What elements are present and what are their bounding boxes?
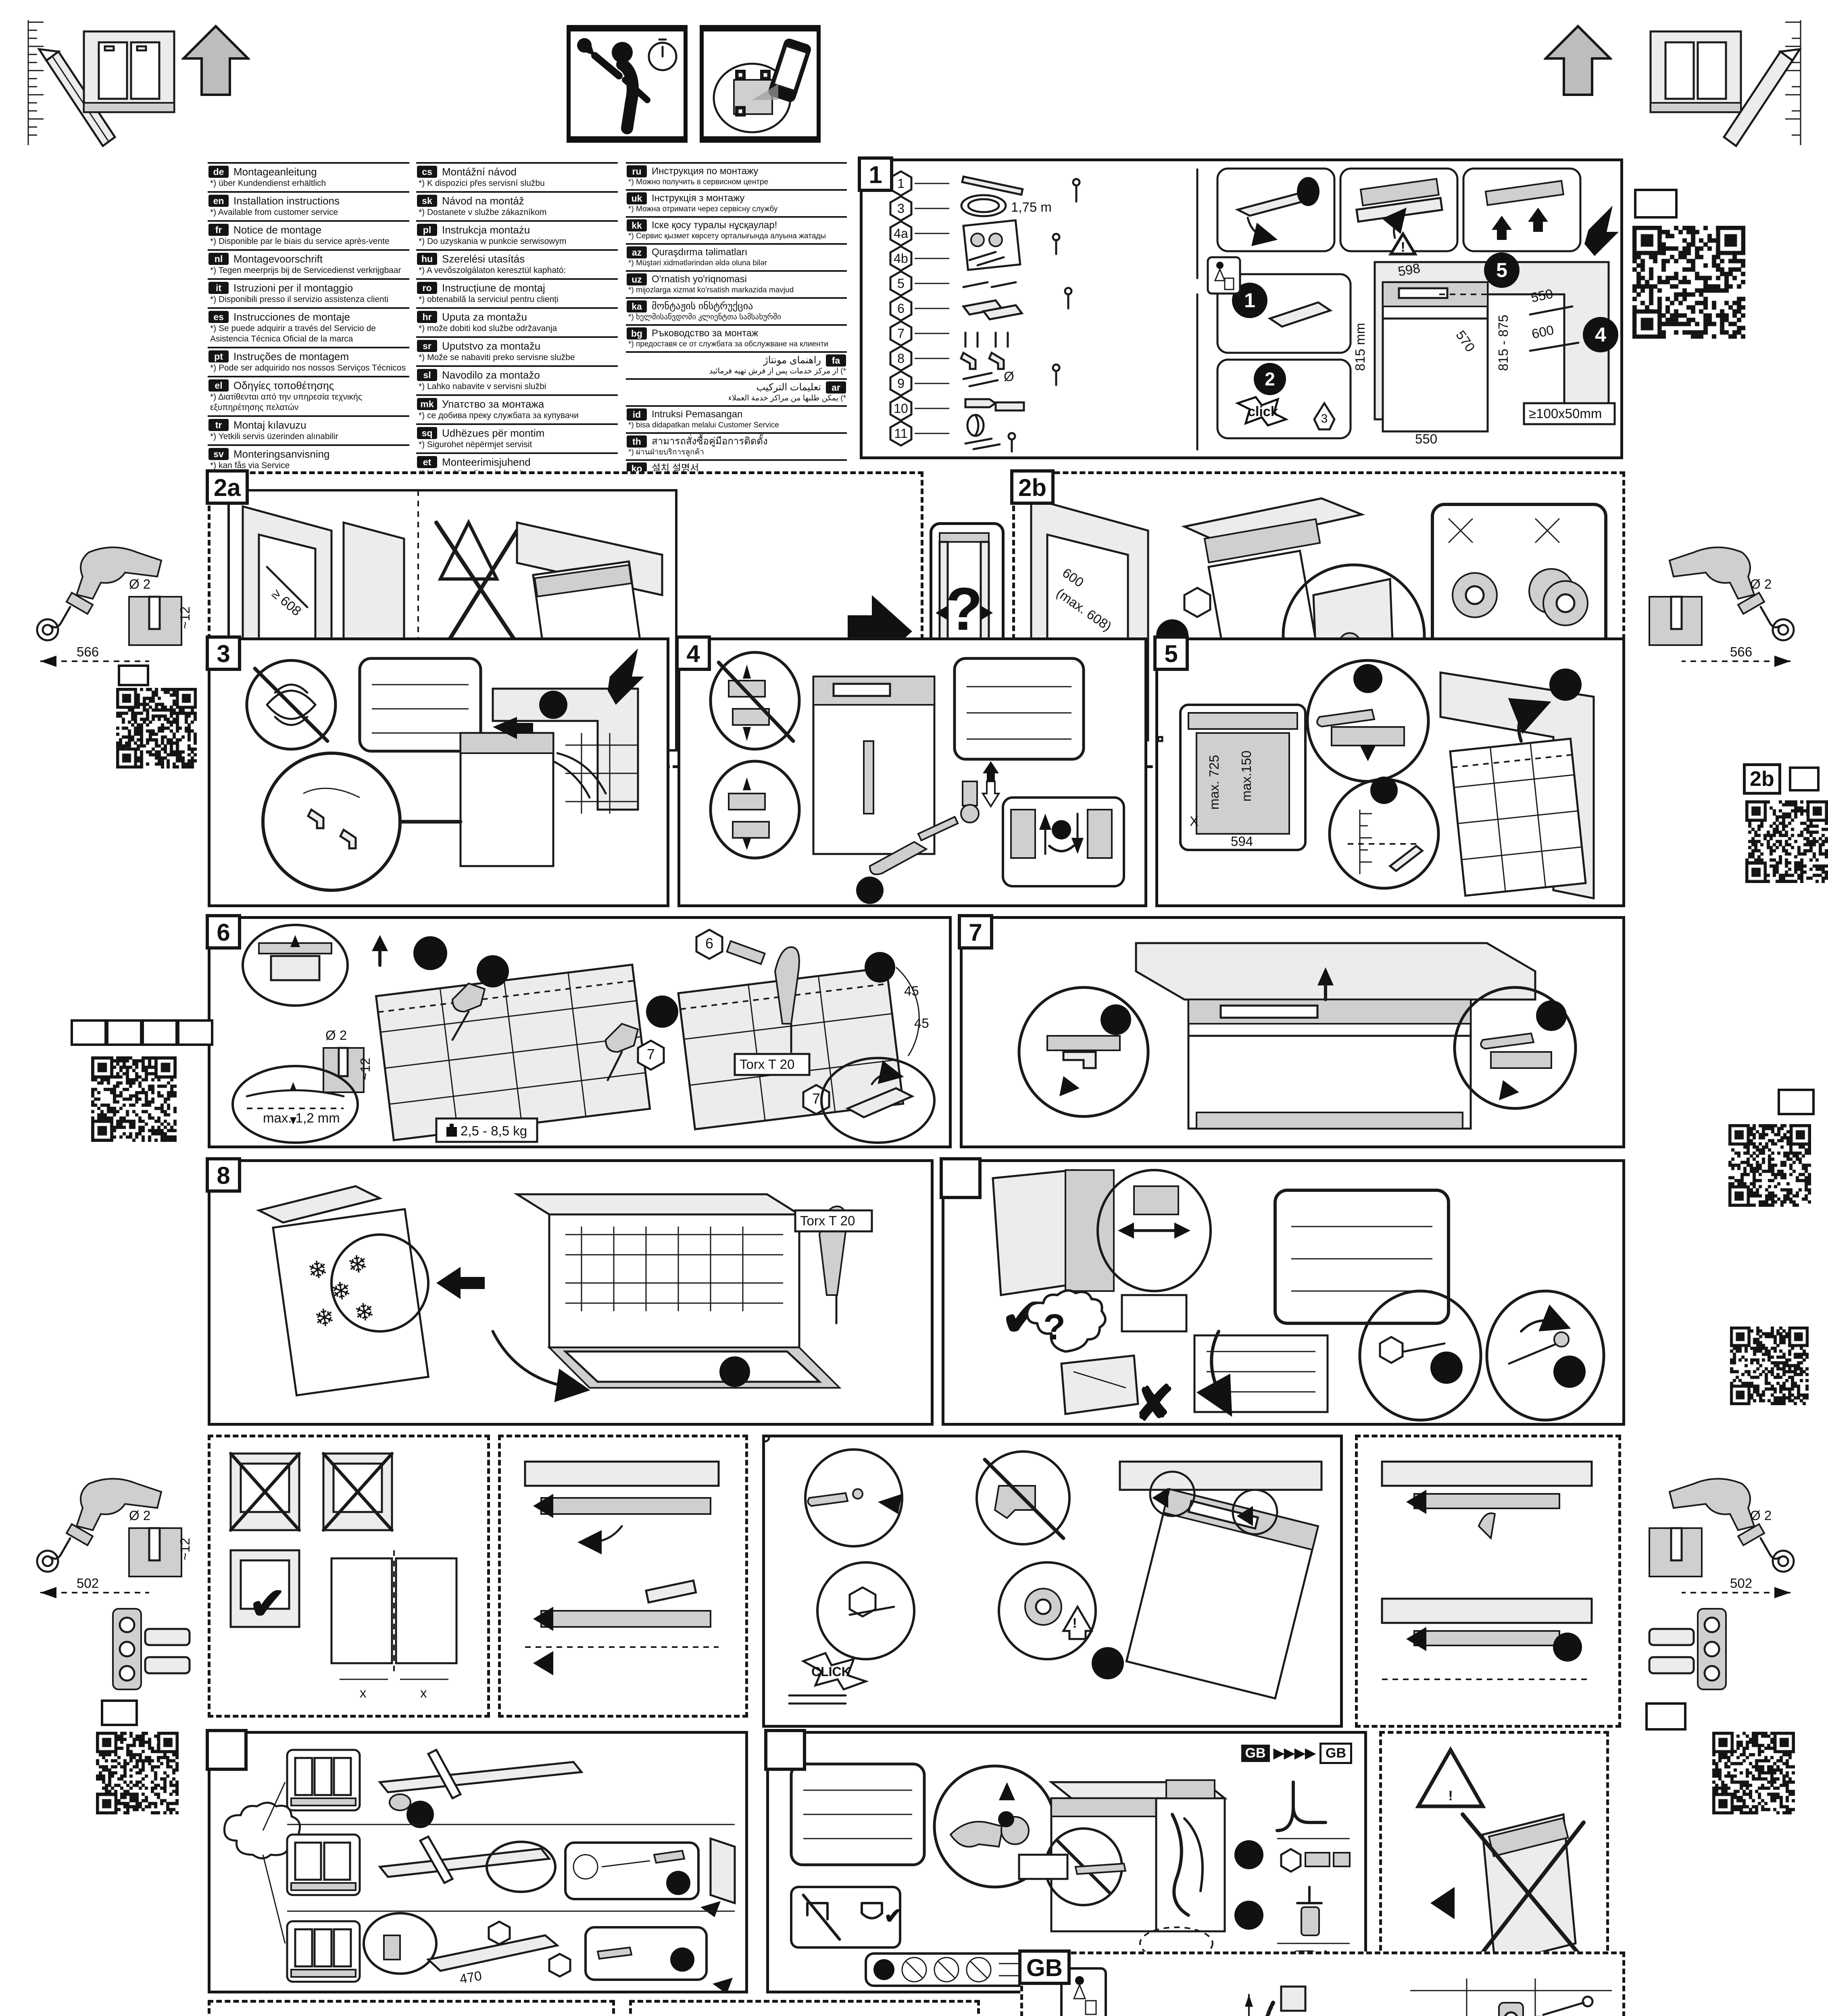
language-note: *) Do uzyskania w punkcie serwisowym [417,236,617,247]
language-code: sv [208,448,229,460]
language-code: hu [417,253,437,265]
panel-label-checkbox[interactable] [764,1729,806,1771]
language-code: de [208,166,229,178]
language-code: pl [417,224,437,236]
svg-text:815 mm: 815 mm [1353,323,1367,371]
language-title: Notice de montage [233,223,321,236]
panel-side-fixing: ! CLICK [762,1435,1343,1728]
part-number: 5 [897,276,905,291]
side-fixing-diagram: ! CLICK [765,1437,1340,1725]
svg-text:❄: ❄ [306,1255,329,1285]
part-number: 11 [894,426,907,441]
gb-chip: GB [1241,1745,1270,1762]
language-title: Udhëzues për montim [442,427,544,439]
qr-code [1632,226,1745,339]
svg-text:502: 502 [1730,1576,1752,1591]
language-code: sr [417,340,437,352]
language-note: *) از مرکز خدمات پس از فرش تهیه فرمائید [627,367,846,376]
language-code: sk [417,195,437,207]
svg-text:4: 4 [1595,323,1606,346]
language-code: et [417,456,437,468]
panel-label: 3 [206,635,241,671]
panel-label: 6 [206,914,241,950]
language-title: Instruções de montagem [233,350,349,363]
language-entry-mk: mkУпатство за монтажа*) се добива преку … [416,396,618,425]
svg-text:~12: ~12 [177,1538,192,1560]
language-title: Installation instructions [233,194,340,207]
language-code: sq [417,427,437,439]
panel-countertop-fixing [1355,1435,1621,1728]
svg-text:?: ? [1043,1307,1065,1347]
language-note: *) über Kundendienst erhältlich [208,178,409,189]
language-title: Инструкция по монтажу [652,166,758,177]
language-title: Instrucciones de montaje [233,310,350,323]
part-number: 6 [897,301,905,316]
svg-text:!: ! [1448,1788,1453,1804]
part-number: 3 [897,201,905,216]
language-title: Szerelési utasítás [442,252,525,265]
language-note: *) Можно получить в сервисном центре [627,177,846,187]
panel-door-alignment: ✔ ? ✘ [942,1159,1625,1426]
language-code: en [208,195,229,207]
language-code: fa [826,354,846,367]
qr-code [116,688,197,768]
svg-text:1: 1 [1244,289,1255,312]
up-arrow-icon [181,24,250,97]
language-note: *) Disponible par le biais du service ap… [208,236,409,247]
language-note: *) K dispozici přes servisní službu [417,178,617,189]
panel-gb-drain: GB [1020,1951,1625,2016]
part-number: 8 [897,351,905,366]
panel-label: 5 [1153,635,1189,671]
part-number: 9 [897,376,905,391]
svg-text:Ø 2: Ø 2 [1750,1508,1772,1523]
language-entry-es: esInstrucciones de montaje*) Se puede ad… [208,309,409,348]
language-title: Інструкція з монтажу [652,193,744,204]
svg-text:Ø 2: Ø 2 [129,1508,150,1523]
language-entry-fr: frNotice de montage*) Disponible par le … [208,222,409,251]
language-code: hr [417,311,437,323]
language-code: kk [627,219,647,231]
step-checkbox[interactable] [106,1019,142,1046]
svg-text:600: 600 [1530,322,1555,342]
part-number: 1 [897,176,905,191]
language-code: sl [417,369,437,381]
language-code: th [627,435,647,448]
language-note: *) предоставя се от службата за обслужва… [627,339,846,349]
language-entry-uz: uzO'rnatish yo'riqnomasi*) mijozlarga xi… [626,272,847,299]
language-title: O'rnatish yo'riqnomasi [652,274,747,285]
svg-text:Ø: Ø [1004,369,1014,384]
svg-text:X: X [1190,814,1199,829]
language-entry-de: deMontageanleitung*) über Kundendienst e… [208,164,409,193]
language-title: راهنمای مونتاژ [763,355,821,366]
svg-text:x: x [420,1685,427,1700]
svg-text:❄: ❄ [346,1250,369,1279]
panel-label: 1 [858,156,893,192]
language-note: *) Lahko nabavite v servisni službi [417,381,617,392]
panel-3-diagram [211,640,667,904]
language-note: *) Se puede adquirir a través del Servic… [208,323,409,344]
step-checkbox[interactable] [1789,766,1820,791]
svg-text:x: x [360,1685,367,1700]
panel-4-diagram [680,640,1144,904]
step-checkbox[interactable] [1634,189,1678,219]
svg-text:45: 45 [904,983,919,998]
countertop-fixing-diagram [1358,1437,1618,1725]
svg-text:2,5 - 8,5 kg: 2,5 - 8,5 kg [461,1123,527,1138]
language-entry-it: itIstruzioni per il montaggio*) Disponib… [208,280,409,309]
svg-text:!: ! [1072,1616,1077,1631]
panel-label: GB [1018,1949,1071,1985]
language-title: Упатство за монтажа [442,398,544,410]
manual-sheet: deMontageanleitung*) über Kundendienst e… [0,0,1828,2016]
language-entry-sk: skNávod na montáž*) Dostanete v službe z… [416,193,618,222]
language-note: *) يمكن طلبها من مراكز خدمة العملاء [627,394,846,403]
panel-step-5: 5 max. 725 max.150 594 X [1155,637,1625,907]
language-note: *) Disponibili presso il servizio assist… [208,294,409,305]
language-title: Montageanleitung [233,165,317,178]
language-note: *) može dobiti kod službe održavanja [417,323,617,334]
svg-text:!: ! [1401,240,1405,255]
language-note: *) Tegen meerprijs bij de Servicedienst … [208,265,409,276]
step-checkbox[interactable] [101,1699,138,1726]
svg-text:✘: ✘ [1134,1377,1175,1423]
svg-text:Ø 2: Ø 2 [1750,577,1772,591]
language-entry-az: azQuraşdırma təlimatları*) Müştəri xidmə… [626,245,847,272]
panel-label-checkbox[interactable] [206,1729,248,1771]
part-number: 10 [894,401,908,416]
panel-1-diagram: 134a4b567891011 1,75 m Ø [863,161,1620,456]
language-code: mk [417,398,437,410]
qr-code [1745,800,1828,883]
panel-top-rail-prep [498,1435,748,1718]
svg-text:✔: ✔ [249,1579,286,1629]
svg-text:Torx T 20: Torx T 20 [740,1057,794,1072]
panel-label: 2a [206,469,249,505]
language-entry-ka: kaმონტაჟის ინსტრუქცია*) ხელმისაწვდომი კლ… [626,299,847,326]
language-note: *) Можна отримати через сервісну службу [627,204,846,214]
language-note: *) Može se nabaviti preko servisne služb… [417,352,617,363]
language-note: *) Pode ser adquirido nos nossos Serviço… [208,363,409,373]
panel-label: 2b [1010,469,1055,505]
language-code: az [627,246,647,258]
panel-label: 7 [958,914,993,950]
language-title: Navodilo za montažo [442,369,540,381]
language-entry-en: enInstallation instructions*) Available … [208,193,409,222]
language-entry-id: idIntruksi Pemasangan*) bisa didapatkan … [626,407,847,434]
language-entry-el: elΟδηγίες τοποθέτησης*) Διατίθενται από … [208,377,409,417]
language-title: Instrucțiune de montaj [442,281,545,294]
panel-plinth: 470 [208,1731,748,1993]
language-code: ka [627,300,647,312]
phone-scan-icon [704,31,817,136]
language-title: Istruzioni per il montaggio [233,281,353,294]
svg-text:815 - 875: 815 - 875 [1496,315,1511,371]
language-entry-pt: ptInstruções de montagem*) Pode ser adqu… [208,348,409,377]
language-title: Uputstvo za montažu [442,339,540,352]
language-note: *) Διατίθενται από την υπηρεσία τεχνικής… [208,392,409,413]
language-entry-hu: huSzerelési utasítás*) A vevőszolgálaton… [416,251,618,280]
svg-text:45: 45 [914,1016,929,1031]
language-code: es [208,311,229,323]
svg-text:max. 725: max. 725 [1207,755,1221,810]
hinge-bracket-icon [1637,1597,1742,1702]
language-title: Návod na montáž [442,194,524,207]
language-title: Montážní návod [442,165,517,178]
svg-text:594: 594 [1231,834,1253,849]
language-entry-pl: plInstrukcja montażu*) Do uzyskania w pu… [416,222,618,251]
wrench-timer-icon [571,31,684,136]
step-checkbox[interactable] [118,664,149,686]
panel-label-checkbox[interactable] [940,1157,982,1199]
language-note: *) Available from customer service [208,207,409,218]
language-entry-sq: sqUdhëzues për montim*) Sigurohet nëpërm… [416,425,618,454]
svg-text:Torx T 20: Torx T 20 [800,1213,855,1228]
installation-manual-page: { "doc": {"type": "dishwasher-installati… [0,0,1828,2016]
svg-text:502: 502 [77,1576,99,1591]
svg-text:470: 470 [459,1968,483,1987]
step-checkbox[interactable] [1645,1702,1686,1731]
panel-step-3: 3 [208,637,669,907]
top-rail-diagram [501,1437,745,1715]
hose-lengths-diagram: max. 4 m 2 m Ø 22 mm *) 2,2 m [211,2003,612,2016]
language-title: Montagevoorschrift [233,252,323,265]
language-entry-sl: slNavodilo za montažo*) Lahko nabavite v… [416,367,618,396]
gb-chip-outline: GB [1319,1743,1352,1764]
gb-redirect-note: GB ▶▶▶▶ GB [1241,1743,1353,1764]
svg-text:5: 5 [1496,259,1507,281]
svg-text:~12: ~12 [358,1058,373,1080]
cabinet-types-diagram: ✔ x x [211,1437,487,1715]
panel-step-7: 7 [960,916,1625,1148]
language-entry-nl: nlMontagevoorschrift*) Tegen meerprijs b… [208,251,409,280]
language-code: fr [208,224,229,236]
svg-text:7: 7 [812,1090,820,1107]
language-entry-cs: csMontážní návod*) K dispozici přes serv… [416,164,618,193]
language-code: ar [826,381,846,394]
power-cord-diagram: EU [632,2003,977,2016]
svg-text:max. 1,2 mm: max. 1,2 mm [263,1110,340,1125]
language-title: Intruksi Pemasangan [652,409,742,420]
svg-text:2: 2 [1265,369,1275,389]
language-entry-hr: hrUputa za montažu*) može dobiti kod slu… [416,309,618,338]
language-entry-sr: srUputstvo za montažu*) Može se nabaviti… [416,338,618,367]
language-code: it [208,282,229,294]
language-code: ru [627,165,647,177]
language-entry-tr: trMontaj kılavuzu*) Yetkili servis üzeri… [208,417,409,446]
qr-code [91,1056,177,1142]
language-code: tr [208,419,229,431]
step-checkbox[interactable] [177,1019,213,1046]
language-title: Іске қосу туралы нұсқаулар! [652,220,777,231]
part-number: 7 [897,326,905,341]
ref-2b-tag: 2b [1743,763,1781,795]
language-code: uz [627,273,647,285]
plinth-row-1 [287,1750,582,1828]
svg-text:6: 6 [705,935,713,952]
language-entry-th: thสามารถสั่งซื้อคู่มือการติดตั้ง*) ผ่านฝ… [626,434,847,461]
language-title: Instrukcja montażu [442,223,530,236]
qr-video-pictogram [700,25,821,143]
cabinet-icon [81,28,177,123]
svg-text:click: click [1248,404,1278,419]
panel-8-diagram: ❄❄ ❄❄ ❄ Torx T 20 [211,1162,931,1423]
svg-text:❄: ❄ [352,1297,376,1327]
drill-icon: Ø 2 ~12 502 [28,1468,206,1613]
ruler-icon [1784,18,1817,147]
svg-text:Ø 2: Ø 2 [325,1028,347,1043]
drill-icon: Ø 2 ~12 502 [1625,1468,1803,1613]
gb-drain-diagram [1023,1954,1622,2016]
panel-label: 8 [206,1157,241,1193]
svg-text:~12: ~12 [177,606,192,629]
svg-text:CLICK: CLICK [811,1664,851,1679]
panel-5-diagram: max. 725 max.150 594 X [1158,640,1622,904]
language-title: Quraşdırma təlimatları [652,247,747,258]
language-title: تعليمات التركيب [756,382,821,393]
qr-code [1712,1732,1795,1814]
language-note: *) obtenabilă la serviciul pentru clienț… [417,294,617,305]
language-title: Monteerimisjuhend [442,456,531,469]
panel-label: 4 [675,635,711,671]
svg-text:≥100x50mm: ≥100x50mm [1529,406,1602,421]
panel-step-8: 8 ❄❄ ❄❄ ❄ Torx [208,1159,934,1426]
drill-icon: Ø 2 ~12 566 [1625,536,1803,681]
panel-step-1: 1 134a4b567891011 1,75 m Ø [860,158,1623,459]
language-entry-uk: ukІнструкція з монтажу*) Можна отримати … [626,191,847,218]
language-note: *) Dostanete v službe zákazníkom [417,207,617,218]
step-checkbox[interactable] [142,1019,178,1046]
language-code: ro [417,282,437,294]
language-entry-ru: ruИнструкция по монтажу*) Можно получить… [626,164,847,191]
language-entry-kk: kkІске қосу туралы нұсқаулар!*) Сервис қ… [626,218,847,245]
svg-text:✔: ✔ [884,1904,902,1928]
language-note: *) Sigurohet nëpërmjet servisit [417,439,617,450]
svg-text:7: 7 [647,1046,655,1062]
language-code: uk [627,192,647,204]
language-entry-ro: roInstrucțiune de montaj*) obtenabilă la… [416,280,618,309]
language-title: Montaj kılavuzu [233,419,306,431]
language-note: *) bisa didapatkan melalui Customer Serv… [627,421,846,430]
svg-text:566: 566 [77,644,99,659]
up-arrow-icon [1544,24,1612,97]
step-checkbox[interactable] [71,1019,107,1046]
panel-step-6: 6 Ø 2 ~12 [208,916,952,1148]
language-code: bg [627,327,647,339]
language-note: *) се добива преку службата за купувачи [417,410,617,421]
hinge-bracket-icon [97,1597,202,1702]
svg-text:Ø 2: Ø 2 [129,577,150,591]
language-code: id [627,408,647,421]
language-entry-ar: arتعليمات التركيب*) يمكن طلبها من مراكز … [626,380,847,407]
language-note: *) ผ่านฝ่ายบริการลูกค้า [627,448,846,457]
language-note: *) Müştəri xidmətlərindən əldə oluna bil… [627,258,846,268]
svg-text:566: 566 [1730,644,1752,659]
language-title: Οδηγίες τοποθέτησης [233,379,334,392]
language-note: *) A vevőszolgálaton keresztül kapható: [417,265,617,276]
svg-text:3: 3 [1321,412,1328,425]
svg-text:550: 550 [1415,431,1437,446]
part-number: 4a [894,226,908,241]
qr-code [1730,1327,1809,1405]
language-title: მონტაჟის ინსტრუქცია [652,301,753,312]
panel-step-4: 4 [677,637,1147,907]
panel-power-cord: EU [629,2000,980,2016]
language-note: *) mijozlarga xizmat ko'rsatish markazid… [627,285,846,295]
language-code: pt [208,350,229,362]
language-title: Ръководство за монтаж [652,328,758,339]
svg-text:?: ? [946,575,983,643]
language-entry-fa: faراهنمای مونتاژ*) از مرکز خدمات پس از ف… [626,353,847,380]
svg-text:❄: ❄ [313,1303,336,1333]
language-code: nl [208,253,229,265]
arrow-glyphs: ▶▶▶▶ [1274,1745,1316,1761]
language-code: cs [417,166,437,178]
step-checkbox[interactable] [1778,1089,1815,1115]
service-technician-pictogram [567,25,688,143]
language-note: *) ხელმისაწვდომი კლიენტთა სამსახურში [627,312,846,322]
language-title: สามารถสั่งซื้อคู่มือการติดตั้ง [652,436,768,447]
language-entry-bg: bgРъководство за монтаж*) предоставя се … [626,326,847,353]
panel-cabinet-types: ✔ x x [208,1435,490,1718]
language-code: el [208,379,229,392]
panel-hose-lengths: max. 4 m 2 m Ø 22 mm *) 2,2 m [208,2000,615,2016]
panel-7-diagram [963,919,1622,1145]
language-title: Uputa za montažu [442,310,527,323]
language-title: Monteringsanvisning [233,448,329,460]
qr-code [1728,1124,1811,1207]
part-number: 4b [894,251,908,266]
language-note: *) Yetkili servis üzerinden alınabilir [208,431,409,442]
plinth-diagram: 470 [211,1734,745,1991]
plinth-row-3: 470 [287,1913,733,1991]
panel-9-diagram: ✔ ? ✘ [944,1162,1622,1423]
svg-text:1,75 m: 1,75 m [1011,200,1052,215]
language-note: *) Сервис қызмет көрсету орталығында алу… [627,231,846,241]
qr-code [96,1732,179,1814]
svg-text:max.150: max.150 [1239,750,1254,802]
panel-6-diagram: Ø 2 ~12 max. 1,2 mm 2,5 - 8,5 kg 6 7 7 [211,919,949,1145]
drill-icon: Ø 2 ~12 566 [28,536,206,681]
